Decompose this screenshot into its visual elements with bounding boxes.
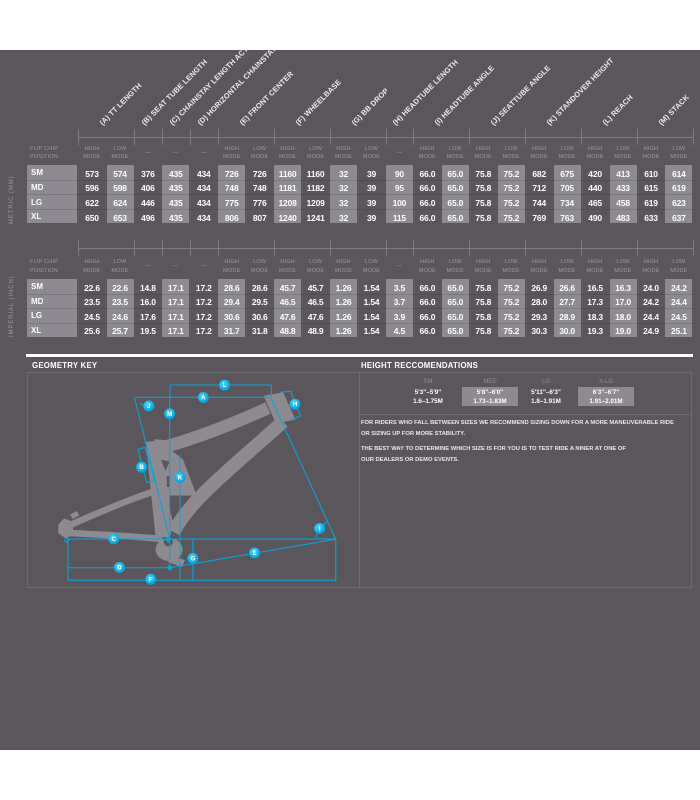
- svg-text:G: G: [190, 555, 195, 562]
- svg-text:A: A: [201, 395, 206, 402]
- svg-text:E: E: [252, 550, 256, 557]
- svg-text:I: I: [319, 526, 321, 533]
- svg-text:F: F: [149, 576, 153, 583]
- svg-text:B: B: [139, 464, 144, 471]
- svg-text:C: C: [112, 536, 117, 543]
- svg-text:D: D: [117, 565, 122, 572]
- svg-text:K: K: [178, 474, 183, 481]
- svg-text:J: J: [147, 403, 151, 410]
- svg-text:H: H: [293, 401, 298, 408]
- svg-text:M: M: [167, 411, 172, 418]
- svg-text:L: L: [223, 382, 227, 389]
